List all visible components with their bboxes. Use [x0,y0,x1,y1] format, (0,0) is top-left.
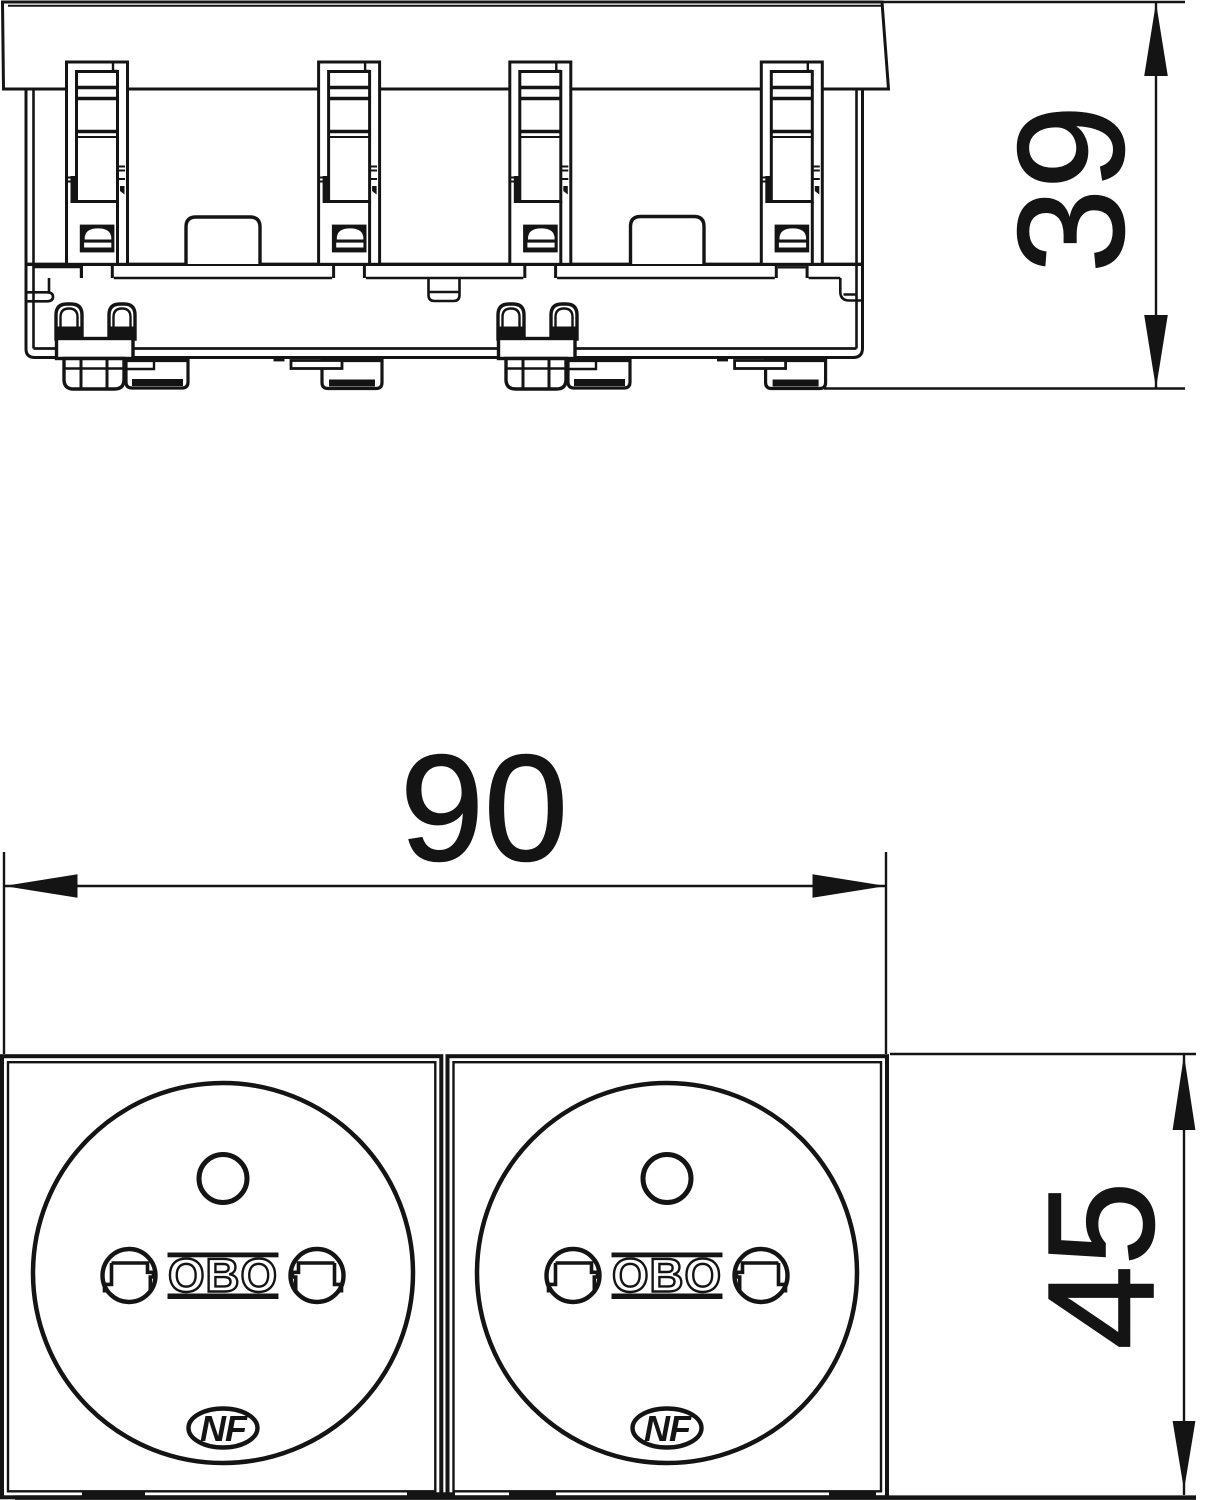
svg-text:90: 90 [400,723,568,892]
svg-text:45: 45 [1016,1182,1185,1350]
svg-text:39: 39 [986,105,1155,273]
